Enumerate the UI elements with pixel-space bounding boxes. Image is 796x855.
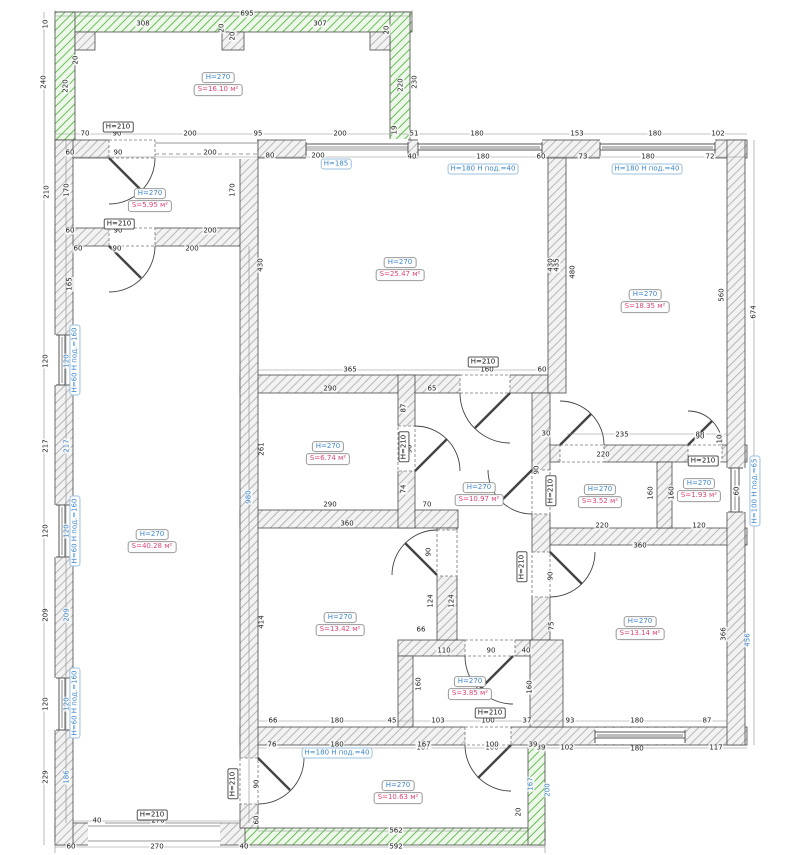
dimension-label: 360 bbox=[339, 521, 354, 528]
dimension-label: 180 bbox=[629, 718, 644, 725]
dimension-label: 10 bbox=[717, 434, 724, 445]
dimension-label: 66 bbox=[268, 718, 279, 725]
dimension-label: 308 bbox=[135, 21, 150, 28]
dimension-label: 160 bbox=[479, 367, 494, 374]
dimension-label: 220 bbox=[63, 78, 70, 93]
dimension-label: 200 bbox=[202, 228, 217, 235]
labels-overlay: 6951024022020308202030720220230709020095… bbox=[0, 0, 796, 855]
dimension-label: 90 bbox=[112, 246, 123, 253]
dimension-label: 160 bbox=[669, 485, 676, 500]
dimension-label: 45 bbox=[387, 718, 398, 725]
dimension-label: 209 bbox=[43, 607, 50, 622]
window-height-label: H=180 H под.=40 bbox=[302, 747, 373, 758]
dimension-label: 674 bbox=[751, 304, 758, 319]
dimension-label: 229 bbox=[43, 769, 50, 784]
window-height-label: H=100 H под.=65 bbox=[749, 456, 760, 527]
window-height-label: H=185 bbox=[321, 158, 352, 169]
dimension-label: 366 bbox=[721, 626, 728, 641]
dimension-label: 60 bbox=[537, 367, 548, 374]
dimension-label: 120 bbox=[43, 353, 50, 368]
dimension-label: 180 bbox=[475, 154, 490, 161]
dimension-label: 93 bbox=[565, 718, 576, 725]
room-label-room-1314: H=270S=13.14 м² bbox=[616, 608, 665, 640]
door-height-label: H=210 bbox=[468, 356, 499, 367]
door-height-label: H=210 bbox=[104, 218, 135, 229]
dimension-label: 75 bbox=[549, 621, 556, 632]
dimension-label: 10 bbox=[43, 19, 50, 30]
dimension-label: 70 bbox=[422, 502, 433, 509]
dimension-label: 90 bbox=[113, 150, 124, 157]
dimension-label: 90 bbox=[254, 779, 261, 790]
room-area: S=1.93 м² bbox=[677, 491, 721, 502]
room-label-mid-room: H=270S=6.74 м² bbox=[306, 433, 350, 465]
dimension-label: 120 bbox=[43, 696, 50, 711]
room-area: S=10.63 м² bbox=[374, 793, 423, 804]
door-height-label: H=210 bbox=[137, 809, 168, 820]
room-label-central-room: H=270S=25.47 м² bbox=[376, 249, 425, 281]
dimension-label: 200 bbox=[182, 131, 197, 138]
dimension-label: 40 bbox=[407, 154, 418, 161]
dimension-label: 100 bbox=[484, 742, 499, 749]
dimension-label: 456 bbox=[745, 632, 752, 647]
dimension-label: 100 bbox=[480, 718, 495, 725]
room-height: H=270 bbox=[136, 529, 169, 540]
room-height: H=270 bbox=[463, 482, 496, 493]
room-height: H=270 bbox=[624, 616, 657, 627]
dimension-label: 120 bbox=[691, 523, 706, 530]
dimension-label: 430 bbox=[258, 257, 265, 272]
door-height-label: H=210 bbox=[688, 455, 719, 466]
dimension-label: 124 bbox=[428, 593, 435, 608]
dimension-label: 60 bbox=[73, 246, 84, 253]
dimension-label: 180 bbox=[647, 131, 662, 138]
window-height-label: H=180 H под.=40 bbox=[612, 163, 683, 174]
dimension-label: 20 bbox=[73, 55, 80, 66]
dimension-label: 90 bbox=[486, 648, 497, 655]
dimension-label: 167 bbox=[528, 776, 535, 791]
dimension-label: 110 bbox=[436, 648, 451, 655]
room-height: H=270 bbox=[202, 72, 235, 83]
door-height-label: H=210 bbox=[516, 552, 527, 583]
dimension-label: 19 bbox=[392, 125, 399, 136]
window-height-label: H=60 H под.=160 bbox=[69, 325, 80, 396]
dimension-label: 220 bbox=[398, 77, 405, 92]
dimension-label: 103 bbox=[430, 718, 445, 725]
room-area: S=10.97 м² bbox=[455, 495, 504, 506]
dimension-label: 20 bbox=[384, 25, 391, 36]
dimension-label: 167 bbox=[416, 742, 431, 749]
room-label-left-small-room: H=270S=5.95 м² bbox=[128, 180, 172, 212]
dimension-label: 87 bbox=[702, 718, 713, 725]
room-area: S=40.28 м² bbox=[128, 542, 177, 553]
room-area: S=5.95 м² bbox=[128, 201, 172, 212]
dimension-label: 365 bbox=[342, 367, 357, 374]
dimension-label: 60 bbox=[734, 486, 741, 497]
door-height-label: H=210 bbox=[475, 707, 506, 718]
dimension-label: 37 bbox=[522, 718, 533, 725]
window-height-label: H=60 H под.=160 bbox=[69, 668, 80, 739]
dimension-label: 200 bbox=[545, 782, 552, 797]
door-height-label: H=210 bbox=[545, 476, 556, 507]
dimension-label: 117 bbox=[708, 745, 723, 752]
dimension-label: 180 bbox=[629, 746, 644, 753]
dimension-label: 76 bbox=[267, 742, 278, 749]
dimension-label: 70 bbox=[80, 131, 91, 138]
room-label-tiny-room: H=270S=1.93 м² bbox=[677, 470, 721, 502]
dimension-label: 170 bbox=[64, 182, 71, 197]
room-area: S=3.85 м² bbox=[448, 689, 492, 700]
dimension-label: 180 bbox=[469, 131, 484, 138]
room-label-bathroom: H=270S=3.85 м² bbox=[448, 668, 492, 700]
window-height-label: H=180 H под.=40 bbox=[448, 163, 519, 174]
room-label-right-room: H=270S=18.35 м² bbox=[621, 281, 670, 313]
room-label-top-room: H=270S=16.10 м² bbox=[194, 64, 243, 96]
room-area: S=13.42 м² bbox=[316, 625, 365, 636]
dimension-label: 695 bbox=[239, 11, 254, 18]
room-label-corridor: H=270S=10.97 м² bbox=[455, 474, 504, 506]
dimension-label: 270 bbox=[149, 844, 164, 851]
room-height: H=270 bbox=[384, 257, 417, 268]
dimension-label: 180 bbox=[329, 718, 344, 725]
dimension-label: 60 bbox=[536, 154, 547, 161]
dimension-label: 87 bbox=[401, 403, 408, 414]
dimension-label: 562 bbox=[388, 828, 403, 835]
room-area: S=25.47 м² bbox=[376, 270, 425, 281]
room-area: S=13.14 м² bbox=[616, 629, 665, 640]
dimension-label: 60 bbox=[254, 815, 261, 826]
dimension-label: 414 bbox=[259, 614, 266, 629]
dimension-label: 90 bbox=[548, 571, 555, 582]
dimension-label: 170 bbox=[230, 182, 237, 197]
dimension-label: 165 bbox=[67, 276, 74, 291]
dimension-label: 209 bbox=[64, 607, 71, 622]
door-height-label: H=210 bbox=[227, 769, 238, 800]
dimension-label: 95 bbox=[253, 131, 264, 138]
room-area: S=3.52 м² bbox=[578, 497, 622, 508]
dimension-label: 74 bbox=[401, 484, 408, 495]
room-label-left-big-room: H=270S=40.28 м² bbox=[128, 521, 177, 553]
dimension-label: 102 bbox=[559, 745, 574, 752]
room-area: S=6.74 м² bbox=[306, 454, 350, 465]
dimension-label: 20 bbox=[230, 31, 237, 42]
dimension-label: 360 bbox=[632, 543, 647, 550]
dimension-label: 153 bbox=[569, 131, 584, 138]
dimension-label: 40 bbox=[92, 818, 103, 825]
room-height: H=270 bbox=[382, 780, 415, 791]
dimension-label: 73 bbox=[578, 154, 589, 161]
dimension-label: 124 bbox=[449, 593, 456, 608]
room-height: H=270 bbox=[629, 289, 662, 300]
dimension-label: 90 bbox=[534, 465, 541, 476]
dimension-label: 435 bbox=[554, 257, 561, 272]
dimension-label: 60 bbox=[65, 150, 76, 157]
dimension-label: 592 bbox=[388, 844, 403, 851]
dimension-label: 217 bbox=[64, 438, 71, 453]
dimension-label: 186 bbox=[64, 769, 71, 784]
room-height: H=270 bbox=[584, 484, 617, 495]
dimension-label: 120 bbox=[43, 523, 50, 538]
dimension-label: 180 bbox=[640, 154, 655, 161]
dimension-label: 65 bbox=[427, 386, 438, 393]
dimension-label: 51 bbox=[409, 131, 420, 138]
dimension-label: 210 bbox=[44, 184, 51, 199]
room-height: H=270 bbox=[312, 441, 345, 452]
dimension-label: 200 bbox=[184, 246, 199, 253]
dimension-label: 240 bbox=[41, 74, 48, 89]
dimension-label: 40 bbox=[521, 648, 532, 655]
floor-plan-canvas: 6951024022020308202030720220230709020095… bbox=[0, 0, 796, 855]
dimension-label: 160 bbox=[416, 676, 423, 691]
dimension-label: 980 bbox=[246, 489, 253, 504]
room-height: H=270 bbox=[324, 612, 357, 623]
dimension-label: 60 bbox=[65, 228, 76, 235]
dimension-label: 30 bbox=[541, 431, 552, 438]
dimension-label: 220 bbox=[594, 523, 609, 530]
dimension-label: 235 bbox=[614, 432, 629, 439]
room-height: H=270 bbox=[683, 478, 716, 489]
room-height: H=270 bbox=[134, 188, 167, 199]
room-label-room-1342: H=270S=13.42 м² bbox=[316, 604, 365, 636]
room-area: S=16.10 м² bbox=[194, 85, 243, 96]
dimension-label: 200 bbox=[332, 131, 347, 138]
dimension-label: 80 bbox=[265, 153, 276, 160]
dimension-label: 160 bbox=[527, 679, 534, 694]
dimension-label: 230 bbox=[412, 74, 419, 89]
dimension-label: 261 bbox=[259, 441, 266, 456]
window-height-label: H=60 H под.=160 bbox=[69, 496, 80, 567]
dimension-label: 39 bbox=[528, 742, 539, 749]
dimension-label: 480 bbox=[570, 264, 577, 279]
dimension-label: 90 bbox=[426, 547, 433, 558]
dimension-label: 72 bbox=[705, 154, 716, 161]
dimension-label: 90 bbox=[695, 434, 706, 441]
dimension-label: 60 bbox=[66, 844, 77, 851]
dimension-label: 220 bbox=[595, 452, 610, 459]
room-area: S=18.35 м² bbox=[621, 302, 670, 313]
dimension-label: 560 bbox=[719, 287, 726, 302]
dimension-label: 102 bbox=[710, 131, 725, 138]
room-height: H=270 bbox=[454, 676, 487, 687]
dimension-label: 200 bbox=[202, 150, 217, 157]
dimension-label: 290 bbox=[322, 386, 337, 393]
room-label-small-room: H=270S=3.52 м² bbox=[578, 476, 622, 508]
dimension-label: 66 bbox=[416, 627, 427, 634]
dimension-label: 217 bbox=[43, 438, 50, 453]
dimension-label: 20 bbox=[516, 807, 523, 818]
door-height-label: H=210 bbox=[103, 121, 134, 132]
dimension-label: 20 bbox=[219, 23, 226, 34]
dimension-label: 307 bbox=[312, 21, 327, 28]
room-label-bottom-room: H=270S=10.63 м² bbox=[374, 772, 423, 804]
dimension-label: 40 bbox=[239, 844, 250, 851]
dimension-label: 290 bbox=[322, 502, 337, 509]
dimension-label: 160 bbox=[648, 485, 655, 500]
door-height-label: H=210 bbox=[398, 432, 409, 463]
